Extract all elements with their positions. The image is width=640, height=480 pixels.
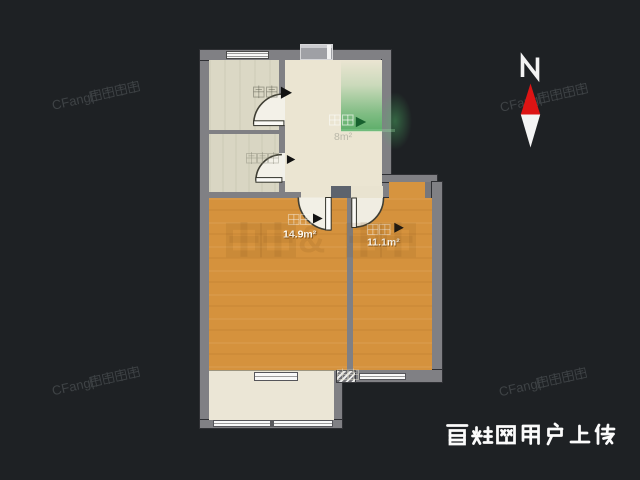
svg-text:CFang|: CFang| bbox=[51, 374, 96, 398]
svg-text:CFang|: CFang| bbox=[51, 89, 96, 113]
svg-text:8m²: 8m² bbox=[334, 131, 353, 143]
svg-text:&: & bbox=[298, 219, 325, 261]
svg-text:CFang|: CFang| bbox=[498, 375, 543, 399]
